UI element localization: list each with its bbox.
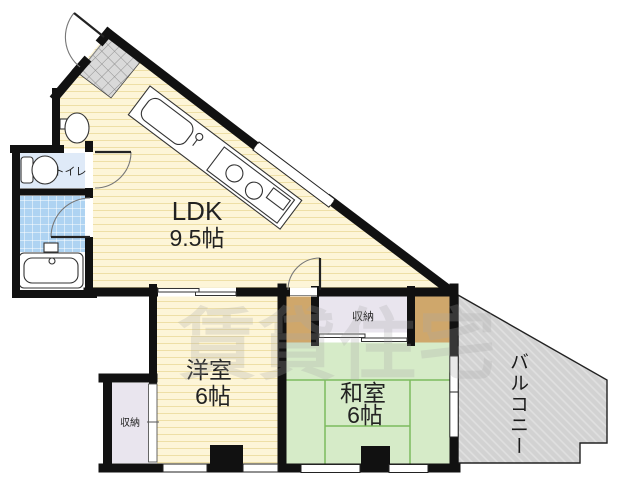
bath-step <box>44 243 58 252</box>
floor-plan: LDK 9.5帖 洋室 6帖 和室 6帖 トイレ 収納 収納 バルコニー 賃貸住… <box>0 0 640 480</box>
window-south <box>163 464 207 472</box>
pillar <box>210 445 243 468</box>
balcony-label: バルコニー <box>504 352 531 457</box>
toilet-label: トイレ <box>54 166 87 178</box>
ldk-area: 9.5帖 <box>170 225 225 251</box>
pillar <box>361 446 390 468</box>
window-south <box>243 464 278 472</box>
window-south <box>389 465 428 473</box>
storage-west-door <box>147 384 159 462</box>
sliding-door-western <box>158 288 236 297</box>
toilet-fixture <box>21 156 58 184</box>
bathtub <box>19 253 83 288</box>
balcony-label-box: バルコニー <box>504 352 540 464</box>
window-south <box>301 465 360 473</box>
watermark: 賃貸住宅 <box>177 301 498 389</box>
storage-west-label: 収納 <box>120 416 140 429</box>
floor-plan-svg: LDK 9.5帖 洋室 6帖 和室 6帖 トイレ 収納 収納 バルコニー 賃貸住… <box>0 0 640 480</box>
japanese-room-area: 6帖 <box>347 402 383 428</box>
ldk-label: LDK <box>172 196 223 226</box>
